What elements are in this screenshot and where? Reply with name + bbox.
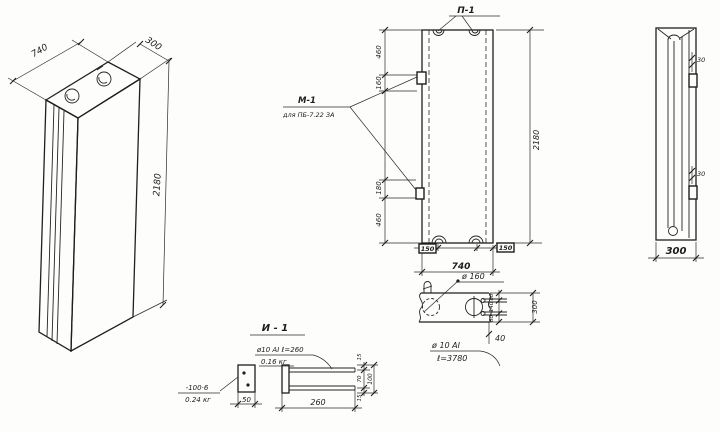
plan-break-lines (419, 293, 491, 322)
detail-plate (238, 365, 255, 392)
plan-section-view: ø 160 80 140 80 300 40 (419, 272, 540, 344)
detail-plate-size: -100·6 (186, 384, 209, 392)
side-dim-30-top: 30 (697, 56, 705, 64)
iso-dim-2180: 2180 (152, 173, 164, 197)
embed-note: для ПБ-7.22 ЗА (282, 111, 334, 119)
note-bar-length: ℓ=3780 (436, 354, 467, 363)
note-bar-spec: ø 10 АI (431, 341, 461, 350)
plan-edges (419, 293, 490, 322)
plan-dim-140: 140 (489, 301, 495, 312)
side-view: 30 30 300 (648, 28, 705, 262)
technical-drawing: 740 300 2180 П-1 М-1 для ПБ-7.22 ЗА 460 … (0, 0, 720, 432)
iso-dim-740-lines (8, 40, 108, 100)
detail-bar-spec: ø10 АI ℓ=260 (256, 346, 304, 354)
isometric-view: 740 300 2180 (8, 35, 172, 351)
embed-mark-label: М-1 (298, 96, 316, 106)
embed-plate-2 (416, 188, 424, 199)
iso-dim-740: 740 (30, 42, 50, 60)
plan-dim-hole: ø 160 (461, 272, 485, 281)
iso-groove-lines (47, 105, 64, 344)
side-embed-1 (689, 74, 697, 87)
side-dim-30-bottom: 30 (697, 170, 705, 178)
front-dim-160: 160 (375, 76, 383, 90)
plan-anchor-bars (483, 299, 507, 315)
front-left-dim-lines (379, 30, 422, 243)
iso-front-face (71, 79, 140, 351)
embed-plate-1 (417, 72, 426, 84)
plan-dim-300: 300 (531, 300, 539, 314)
detail-dim-100: 100 (367, 373, 374, 385)
front-void-dashed (429, 30, 486, 243)
front-top-loop-2 (469, 30, 480, 36)
detail-dim-50: 50 (242, 396, 251, 404)
iso-dim-300: 300 (143, 35, 163, 53)
detail-dim-15-bottom: 15 (357, 394, 363, 401)
plan-dim-40: 40 (495, 334, 505, 343)
front-bottom-loop-2 (469, 236, 483, 243)
iso-lift-loop-2 (99, 77, 107, 83)
side-dim-300: 300 (666, 246, 687, 257)
detail-dim-15-top: 15 (357, 353, 363, 360)
drawing-sheet: 740 300 2180 П-1 М-1 для ПБ-7.22 ЗА 460 … (0, 0, 720, 432)
plan-dim-80-top: 80 (489, 293, 495, 300)
detail-dim-70: 70 (357, 375, 363, 382)
iso-dim-2180-lines (133, 61, 169, 317)
iso-top-face (46, 62, 140, 118)
detail-bar-mass: 0.16 кг (261, 358, 287, 366)
detail-anchor-bars (289, 368, 355, 390)
detail-plate-hole-1 (242, 371, 245, 374)
note-loop-bar: ø 10 АI ℓ=3780 (430, 341, 500, 366)
side-channel-top (668, 35, 680, 40)
loop-mark-leaders (438, 16, 500, 31)
detail-plate-hole-2 (246, 383, 249, 386)
side-embed-2 (689, 186, 697, 199)
loop-mark-label: П-1 (457, 6, 475, 16)
front-dim-150-right: 150 (499, 244, 513, 252)
iso-lift-loop-1 (67, 94, 75, 100)
side-channel-bottom (669, 227, 678, 236)
front-view: П-1 М-1 для ПБ-7.22 ЗА 460 160 180 460 2… (282, 6, 544, 276)
plan-loop-top (423, 282, 432, 294)
front-dim-460-top: 460 (375, 45, 383, 59)
front-dim-460-bottom: 460 (375, 213, 383, 227)
front-dim-740: 740 (452, 262, 471, 272)
plan-hole-1 (423, 299, 440, 316)
detail-dim-260: 260 (310, 398, 325, 407)
front-outline (422, 30, 493, 243)
detail-plate-mass: 0.24 кг (185, 396, 211, 404)
front-bottom-loop-1 (432, 236, 446, 243)
front-dim-2180: 2180 (532, 130, 541, 150)
detail-anchor-plate (282, 365, 289, 393)
front-dim-150-left: 150 (421, 245, 435, 253)
front-dim-180: 180 (375, 181, 383, 195)
iso-dim-300-lines (108, 42, 171, 79)
detail-i1: И - 1 50 -100·6 0.24 кг ø10 АI ℓ=260 0.1… (178, 323, 378, 412)
embed-mark-leaders (283, 77, 417, 190)
plan-dim-ticks (496, 290, 536, 325)
detail-title: И - 1 (262, 323, 288, 334)
side-channel-lines (668, 30, 689, 238)
plan-dim-80-bottom: 80 (489, 315, 495, 322)
